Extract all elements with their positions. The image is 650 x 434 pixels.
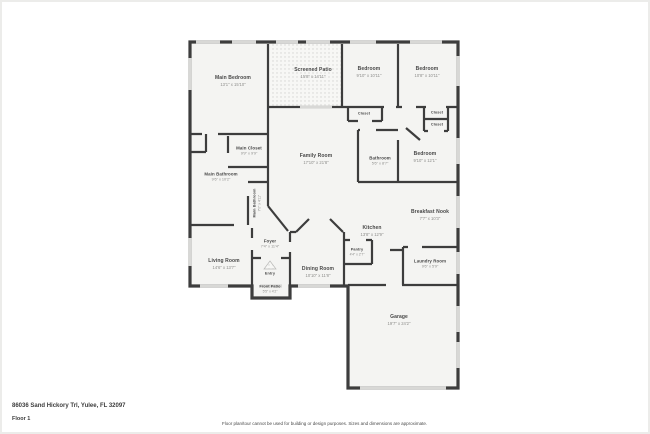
room-name: Garage [388, 314, 411, 320]
room-name: Pantry [350, 247, 365, 252]
room-dims: 10'10" x 11'8" [302, 273, 334, 278]
room-name: Foyer [261, 239, 279, 245]
room-dims: 7'4" x 11'4" [261, 245, 279, 250]
room-name: Closet [358, 112, 370, 117]
room-name: Family Room [300, 153, 333, 159]
room-name: Front Patio [259, 284, 280, 289]
room-label-garage: Garage 19'7" x 24'2" [388, 314, 411, 326]
room-name: Bedroom [357, 66, 382, 72]
room-dims: 5'6" x 8'7" [369, 162, 391, 167]
room-name: Main Bedroom [215, 75, 251, 81]
room-label-closet-r1: Closet [431, 111, 443, 116]
room-label-foyer: Foyer 7'4" x 11'4" [261, 239, 279, 250]
room-label-main-closet: Main Closet 9'9" x 9'9" [236, 146, 262, 157]
room-name: Screened Patio [294, 67, 332, 73]
room-label-screened-patio: Screened Patio 15'8" x 14'11" [294, 67, 332, 79]
floor-plan-page: Main Bedroom 13'1" x 15'10" Screened Pat… [0, 0, 650, 434]
room-dims: 4'4" x 2'7" [350, 252, 365, 256]
room-label-main-bathroom-wc: Main Bathroom 7'0" x 4'11" [252, 189, 261, 218]
room-label-laundry-room: Laundry Room 9'6" x 5'9" [414, 259, 446, 270]
room-label-family-room: Family Room 17'10" x 21'8" [300, 153, 333, 165]
room-dims: 7'0" x 4'11" [257, 189, 261, 218]
room-label-bedroom-top-right: Bedroom 10'8" x 10'11" [415, 66, 440, 78]
room-label-main-bathroom: Main Bathroom 9'6" x 10'2" [204, 172, 237, 183]
room-label-main-bedroom: Main Bedroom 13'1" x 15'10" [215, 75, 251, 87]
room-label-breakfast-nook: Breakfast Nook 7'7" x 10'3" [411, 209, 449, 221]
room-name: Bedroom [415, 66, 440, 72]
room-label-living-room: Living Room 14'6" x 13'7" [208, 258, 239, 270]
floor-plan-drawing [0, 0, 650, 434]
room-name: Entry [265, 272, 275, 277]
room-dims: 5'5" x 4'2" [259, 289, 280, 293]
room-name: Main Closet [236, 146, 262, 152]
floor-label: Floor 1 [12, 416, 30, 422]
room-label-bedroom-top-mid: Bedroom 9'10" x 10'11" [357, 66, 382, 78]
room-name: Dining Room [302, 266, 334, 272]
room-name: Main Bathroom [204, 172, 237, 178]
room-name: Breakfast Nook [411, 209, 449, 215]
room-label-front-patio: Front Patio 5'5" x 4'2" [259, 284, 280, 293]
room-label-closet-r2: Closet [431, 123, 443, 128]
room-dims: 9'10" x 10'11" [357, 73, 382, 78]
room-dims: 9'10" x 12'1" [414, 158, 437, 163]
disclaimer-text: Floor plan/tour cannot be used for build… [222, 421, 427, 426]
room-dims: 14'6" x 13'7" [208, 265, 239, 270]
room-label-bedroom-mid-right: Bedroom 9'10" x 12'1" [414, 151, 437, 163]
room-dims: 15'8" x 14'11" [294, 74, 332, 79]
room-dims: 10'8" x 10'11" [415, 73, 440, 78]
room-dims: 19'7" x 24'2" [388, 321, 411, 326]
room-dims: 9'6" x 5'9" [414, 265, 446, 270]
room-label-entry: Entry [265, 272, 275, 277]
room-label-kitchen: Kitchen 13'8" x 12'9" [361, 225, 384, 237]
room-name: Kitchen [361, 225, 384, 231]
room-dims: 9'6" x 10'2" [204, 178, 237, 183]
room-name: Bedroom [414, 151, 437, 157]
property-address: 86036 Sand Hickory Trl, Yulee, FL 32097 [12, 403, 126, 409]
room-dims: 17'10" x 21'8" [300, 160, 333, 165]
room-label-pantry: Pantry 4'4" x 2'7" [350, 247, 365, 256]
room-name: Closet [431, 111, 443, 116]
room-label-closet-mid: Closet [358, 112, 370, 117]
room-name: Bathroom [369, 156, 391, 162]
room-dims: 7'7" x 10'3" [411, 216, 449, 221]
room-name: Main Bathroom [252, 189, 257, 218]
room-dims: 13'8" x 12'9" [361, 232, 384, 237]
room-dims: 9'9" x 9'9" [236, 152, 262, 157]
room-name: Laundry Room [414, 259, 446, 265]
room-dims: 13'1" x 15'10" [215, 82, 251, 87]
room-label-dining-room: Dining Room 10'10" x 11'8" [302, 266, 334, 278]
room-name: Closet [431, 123, 443, 128]
room-name: Living Room [208, 258, 239, 264]
room-label-bathroom: Bathroom 5'6" x 8'7" [369, 156, 391, 167]
